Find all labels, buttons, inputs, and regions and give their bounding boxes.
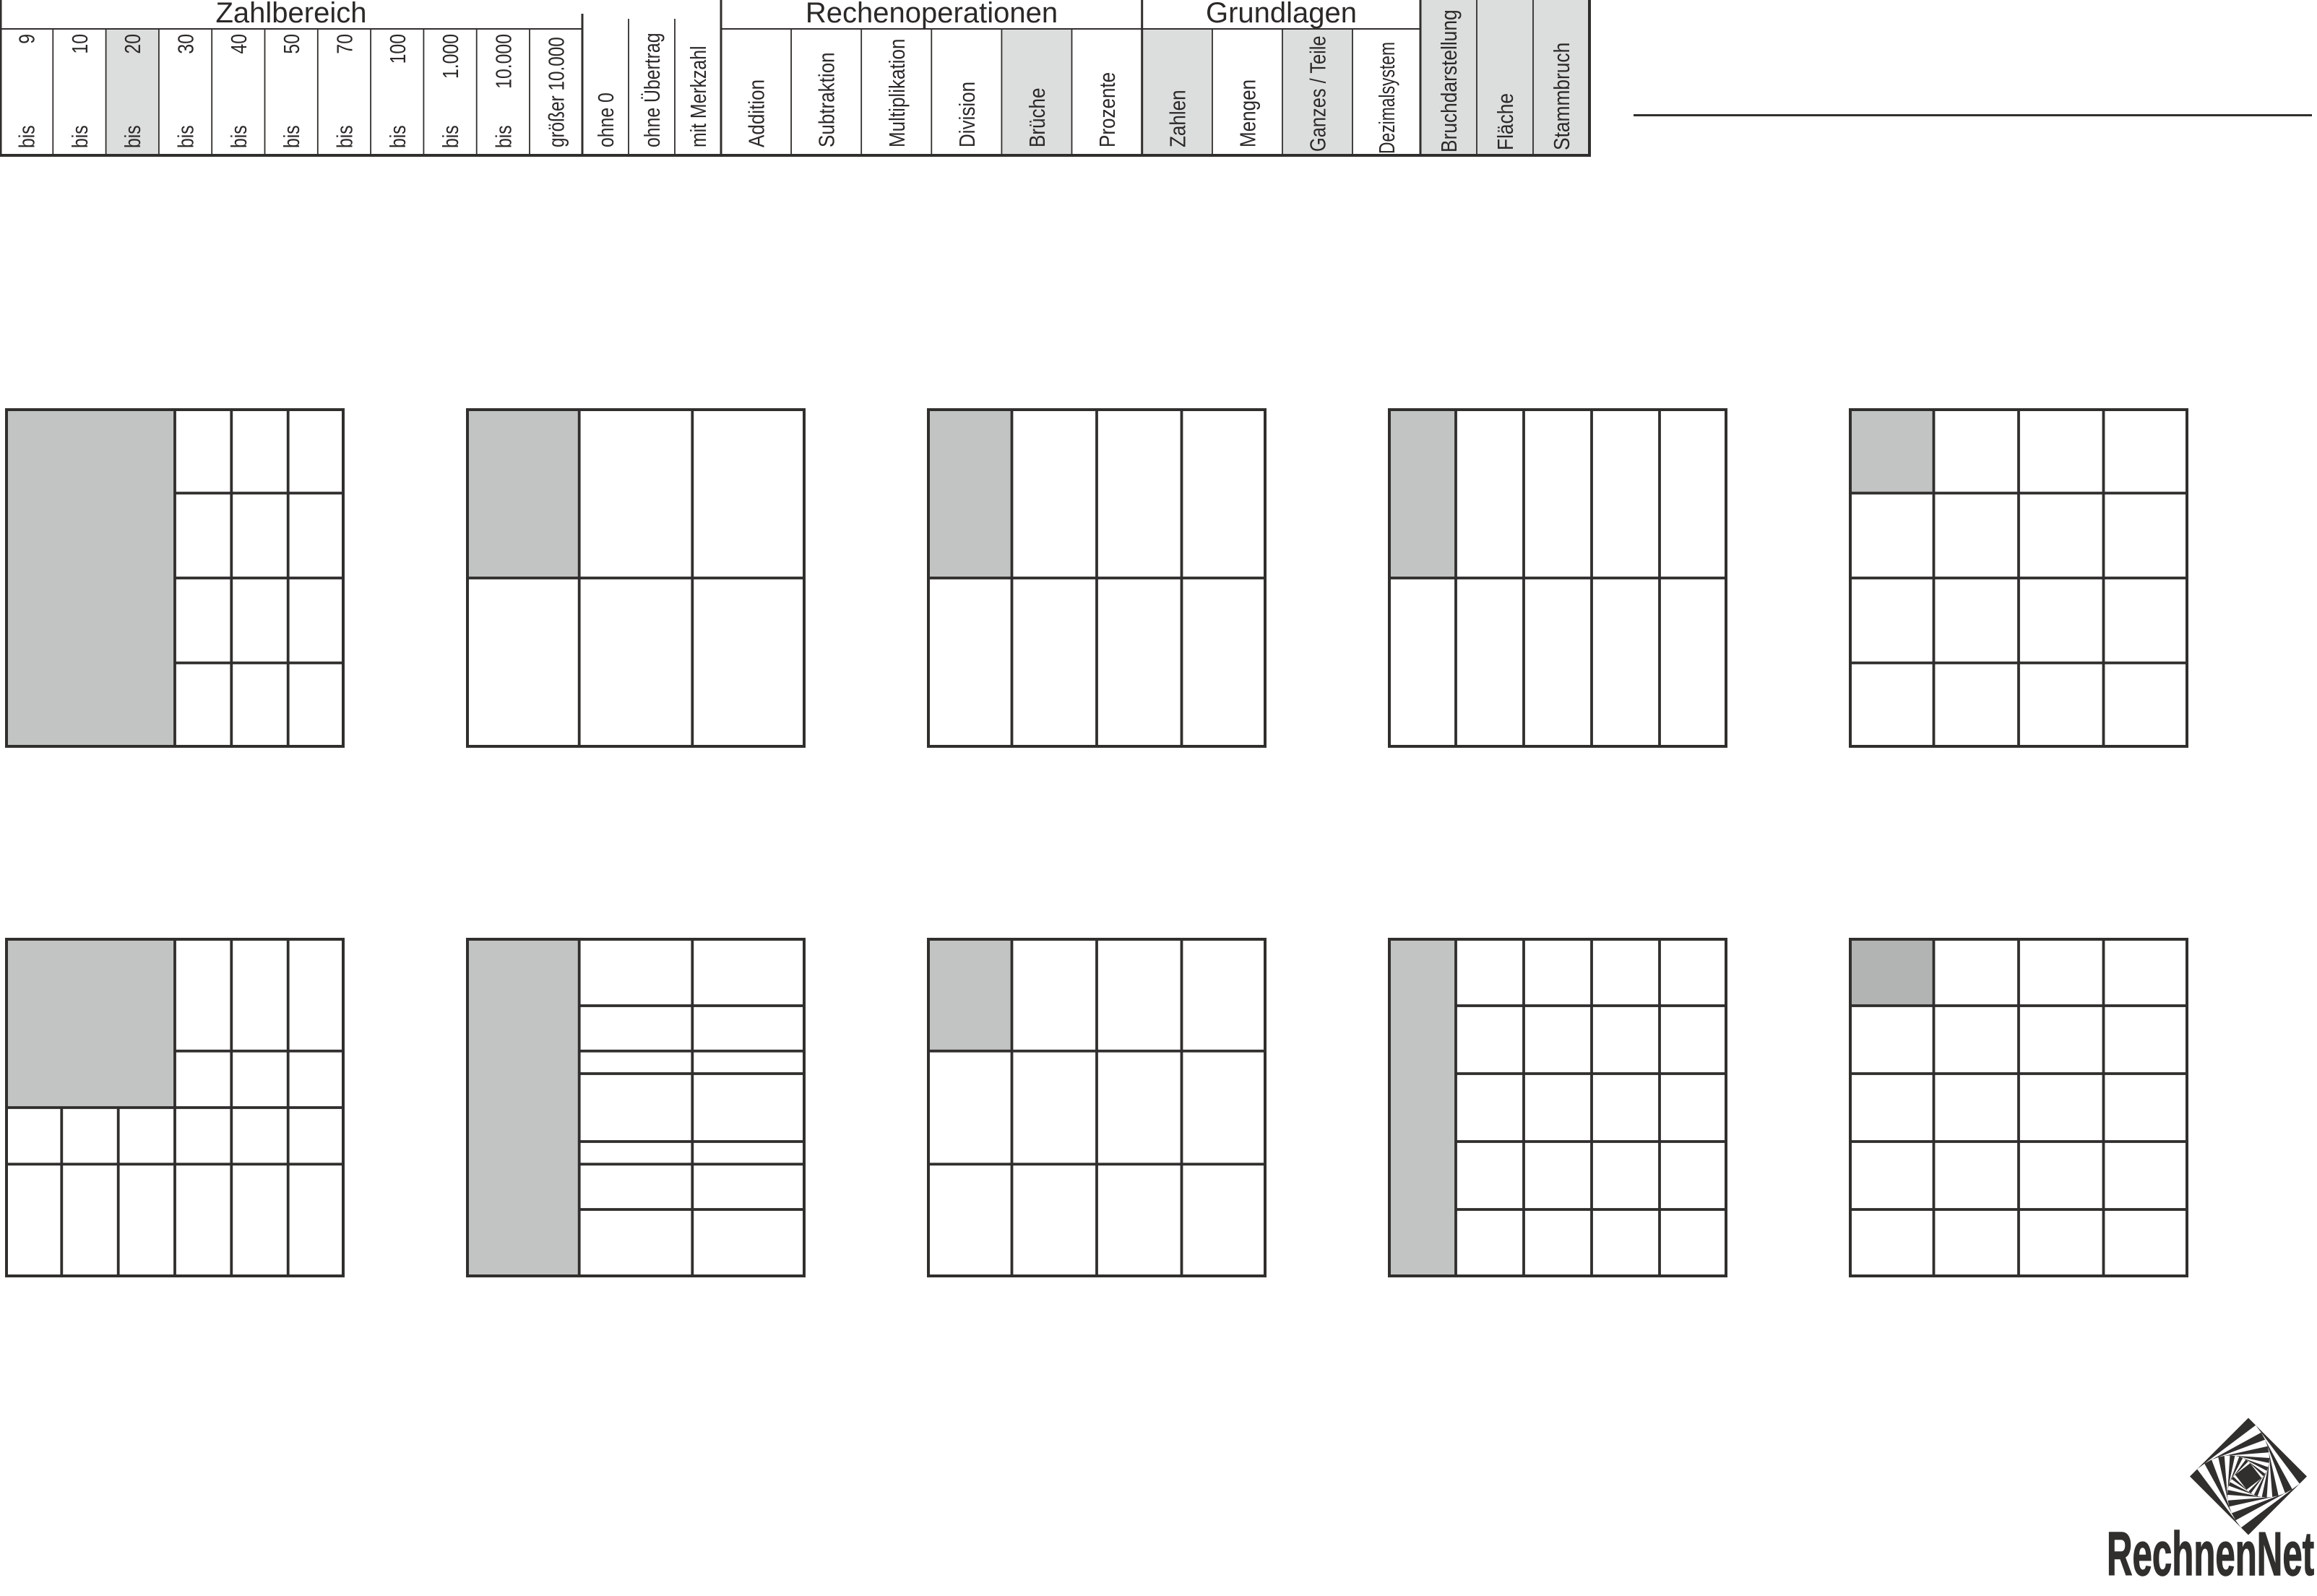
svg-text:Grundlagen: Grundlagen (1206, 0, 1357, 29)
svg-text:40: 40 (226, 34, 251, 54)
svg-text:50: 50 (279, 34, 303, 54)
svg-text:Prozente: Prozente (1095, 72, 1121, 147)
svg-text:bis: bis (385, 125, 410, 148)
svg-text:Zahlen: Zahlen (1165, 90, 1191, 147)
svg-text:30: 30 (173, 34, 198, 54)
svg-text:bis: bis (226, 125, 251, 148)
svg-text:Bruchdarstellung: Bruchdarstellung (1437, 9, 1462, 152)
svg-text:Mengen: Mengen (1235, 79, 1261, 147)
svg-text:bis: bis (438, 125, 462, 148)
svg-text:Ganzes / Teile: Ganzes / Teile (1306, 35, 1331, 152)
svg-text:bis: bis (173, 125, 198, 148)
svg-text:ohne 0: ohne 0 (593, 92, 618, 147)
svg-text:Multiplikation: Multiplikation (885, 39, 910, 147)
svg-text:20: 20 (121, 34, 145, 54)
svg-text:Fläche: Fläche (1493, 93, 1518, 150)
svg-text:Rechenoperationen: Rechenoperationen (806, 0, 1058, 29)
svg-text:1.000: 1.000 (438, 34, 462, 79)
svg-text:bis: bis (121, 125, 145, 148)
svg-text:Addition: Addition (744, 79, 769, 147)
svg-text:RechnenNet: RechnenNet (2107, 1519, 2314, 1588)
svg-text:mit Merkzahl: mit Merkzahl (686, 46, 710, 147)
svg-text:bis: bis (491, 125, 516, 148)
svg-text:Dezimalsystem: Dezimalsystem (1374, 42, 1399, 154)
svg-text:Zahlbereich: Zahlbereich (215, 0, 366, 29)
svg-text:10.000: 10.000 (491, 34, 516, 89)
svg-text:Stammbruch: Stammbruch (1550, 43, 1574, 150)
svg-text:größer 10.000: größer 10.000 (544, 37, 569, 147)
svg-text:ohne Übertrag: ohne Übertrag (639, 33, 664, 147)
svg-text:bis: bis (332, 125, 357, 148)
svg-text:bis: bis (279, 125, 303, 148)
svg-text:Brüche: Brüche (1025, 88, 1050, 147)
svg-text:bis: bis (14, 125, 39, 148)
svg-text:Division: Division (955, 82, 980, 147)
svg-text:Subtraktion: Subtraktion (815, 52, 840, 147)
svg-text:10: 10 (67, 34, 92, 54)
svg-text:70: 70 (332, 34, 357, 54)
svg-text:100: 100 (385, 34, 410, 64)
svg-text:bis: bis (67, 125, 92, 148)
svg-text:9: 9 (14, 34, 39, 44)
